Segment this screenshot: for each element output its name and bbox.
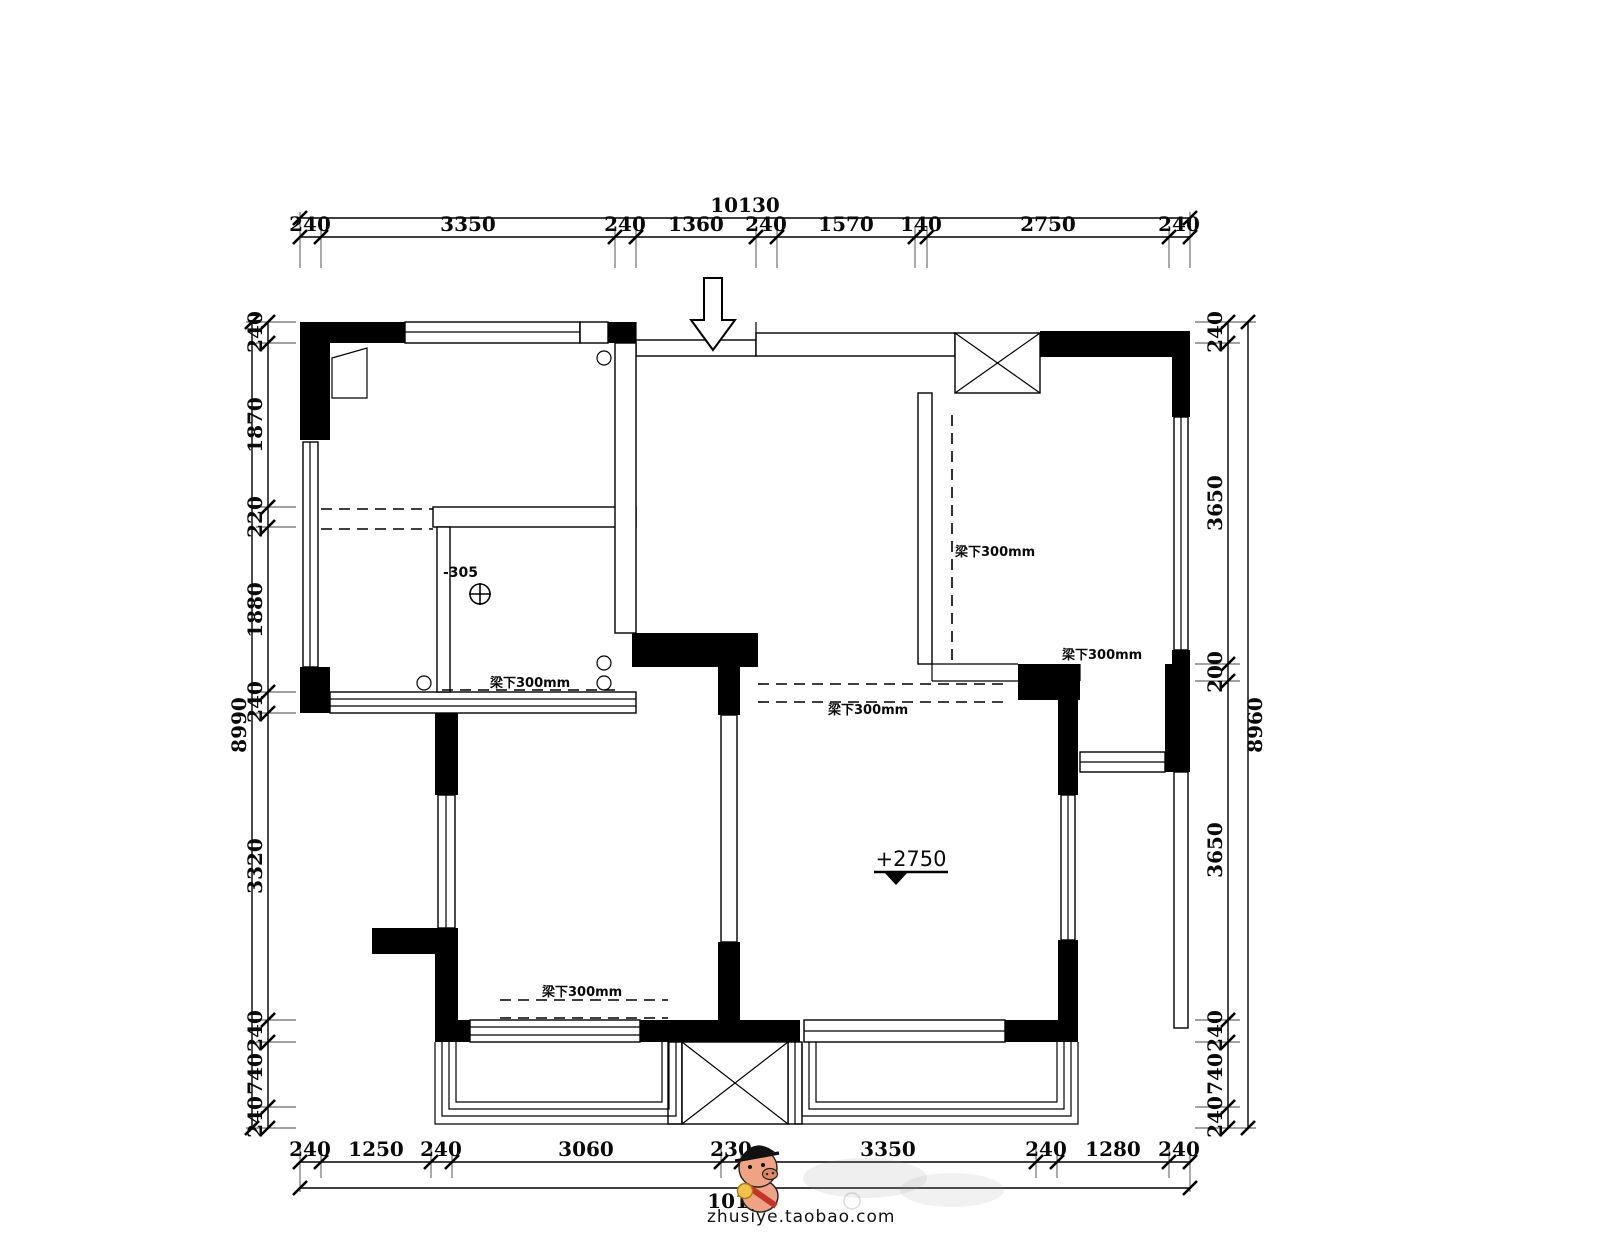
window-bottom-left xyxy=(470,1020,640,1042)
dim-right-3: 3650 xyxy=(1203,822,1227,878)
walls-solid xyxy=(300,322,1190,1042)
floor-drop-label: -305 xyxy=(443,565,478,581)
entry-arrow-icon xyxy=(691,278,735,350)
level-mark-label: +2750 xyxy=(875,847,946,871)
dim-top-0: 240 xyxy=(289,212,331,236)
dim-right-total: 8960 xyxy=(1243,697,1267,753)
dim-right-5: 740 xyxy=(1203,1053,1227,1095)
floor-plan-drawing: 10130 240 3350 240 1360 240 1570 140 275… xyxy=(0,0,1600,1236)
dim-bottom-5: 3350 xyxy=(860,1137,916,1161)
dim-bottom-2: 240 xyxy=(420,1137,462,1161)
dim-bottom-1: 1250 xyxy=(348,1137,404,1161)
dim-top-4: 240 xyxy=(745,212,787,236)
dim-top-1: 3350 xyxy=(440,212,496,236)
beam-label-kitchen-bottom: 梁下300mm xyxy=(1061,647,1142,663)
dim-left-3: 1880 xyxy=(243,582,267,638)
window-sill-band xyxy=(330,692,636,713)
dim-top-7: 2750 xyxy=(1020,212,1076,236)
dim-bottom-0: 240 xyxy=(289,1137,331,1161)
watermark-url: zhusiye.taobao.com xyxy=(707,1207,895,1227)
dim-left-4: 240 xyxy=(243,681,267,723)
dim-left-6: 240 xyxy=(243,1010,267,1052)
dim-top-8: 240 xyxy=(1158,212,1200,236)
dim-bottom-8: 240 xyxy=(1158,1137,1200,1161)
entry-threshold xyxy=(636,340,756,356)
dim-left-5: 3320 xyxy=(243,838,267,894)
kitchen-wall xyxy=(918,393,932,664)
dim-left-7: 740 xyxy=(243,1053,267,1095)
drain-crosshair-icon xyxy=(469,583,491,605)
dim-left-1: 1870 xyxy=(243,397,267,453)
beam-label-bedroom: 梁下300mm xyxy=(541,984,622,1000)
dim-top-6: 140 xyxy=(900,212,942,236)
dim-right-2: 200 xyxy=(1203,651,1227,693)
dim-bottom-6: 240 xyxy=(1025,1137,1067,1161)
dim-right-6: 240 xyxy=(1203,1096,1227,1138)
floor-plan-canvas: 10130 240 3350 240 1360 240 1570 140 275… xyxy=(0,0,1600,1236)
level-mark-icon xyxy=(874,872,948,885)
dim-left-2: 220 xyxy=(243,496,267,538)
dim-right-1: 3650 xyxy=(1203,475,1227,531)
dim-right-4: 240 xyxy=(1203,1010,1227,1052)
beam-label-hall: 梁下300mm xyxy=(827,702,908,718)
dim-top-2: 240 xyxy=(604,212,646,236)
beam-label-kitchen-left: 梁下300mm xyxy=(954,544,1035,560)
dim-bottom-3: 3060 xyxy=(558,1137,614,1161)
dim-left-0: 240 xyxy=(243,311,267,353)
dim-bottom-7: 1280 xyxy=(1085,1137,1141,1161)
dim-left-8: 240 xyxy=(243,1096,267,1138)
watermark: zhusiye.taobao.com xyxy=(707,1145,1004,1227)
dim-right-0: 240 xyxy=(1203,311,1227,353)
dim-top-5: 1570 xyxy=(818,212,874,236)
dim-top-3: 1360 xyxy=(668,212,724,236)
beam-label-left-room: 梁下300mm xyxy=(489,675,570,691)
